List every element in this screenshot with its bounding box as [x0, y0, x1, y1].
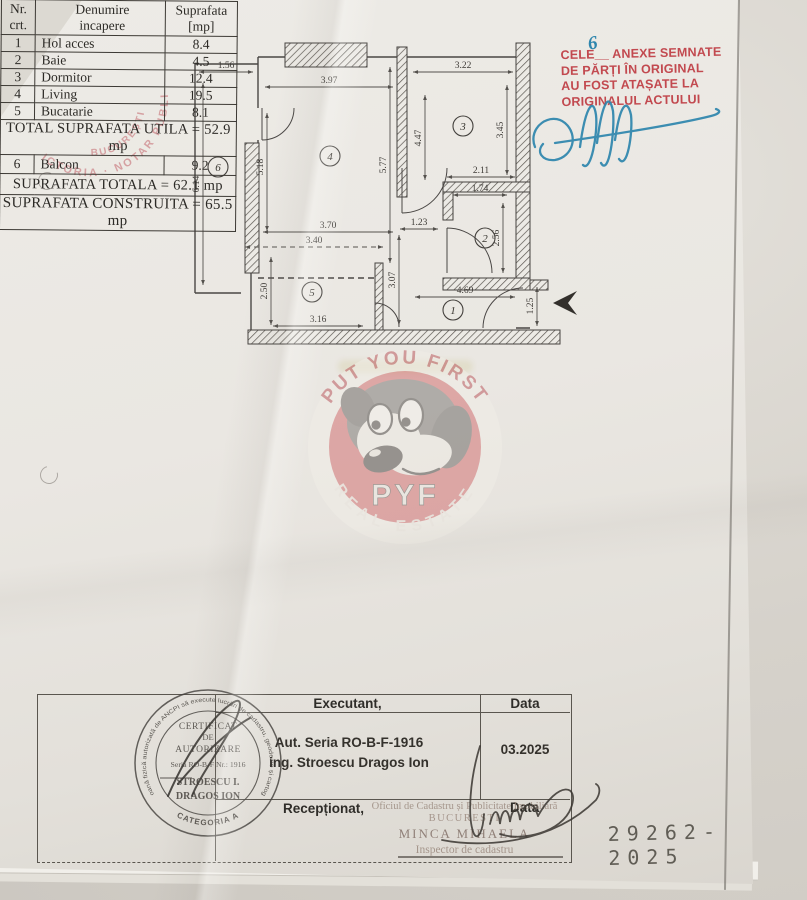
svg-text:3.22: 3.22	[455, 61, 472, 71]
svg-text:3.45: 3.45	[496, 121, 506, 138]
watermark-brand-text: PYF	[371, 479, 438, 512]
data-label-top: Data	[480, 696, 570, 711]
photographed-document: VICTORIA · NOTAR PUBLIC BUCUREȘTI	[0, 0, 807, 900]
svg-text:5.18: 5.18	[256, 158, 266, 175]
table-header-row: Nr.crt. Denumireincapere Suprafata[mp]	[1, 0, 237, 37]
svg-text:1: 1	[450, 305, 456, 317]
header-suprafata: Suprafata[mp]	[175, 3, 227, 34]
table-row: 2Baie4.5	[1, 51, 237, 70]
svg-text:3.40: 3.40	[306, 236, 323, 246]
total-construita-row: SUPRAFATA CONSTRUITA = 65.5 mp	[0, 194, 236, 231]
svg-text:2.11: 2.11	[473, 166, 490, 176]
svg-text:3.16: 3.16	[310, 315, 327, 325]
header-nr: Nr.crt.	[9, 2, 27, 33]
svg-text:3: 3	[459, 121, 466, 133]
table-row: 4Living19.5	[1, 85, 237, 104]
svg-text:1.74: 1.74	[472, 184, 489, 194]
svg-text:1.23: 1.23	[411, 218, 428, 228]
executant-pen-signature	[140, 688, 290, 818]
header-denumire: Denumireincapere	[75, 2, 129, 33]
reception-pen-signature	[420, 738, 605, 858]
svg-text:4: 4	[327, 151, 333, 163]
svg-text:4.47: 4.47	[414, 129, 424, 146]
svg-text:2: 2	[482, 233, 488, 245]
table-row: 3Dormitor12.4	[1, 68, 237, 87]
svg-text:3.07: 3.07	[388, 271, 398, 288]
blue-signature	[525, 85, 735, 185]
table-row: 1Hol acces8.4	[1, 34, 237, 53]
entrance-arrow-icon	[553, 291, 577, 315]
svg-text:3.70: 3.70	[320, 221, 337, 231]
room-area-table: Nr.crt. Denumireincapere Suprafata[mp] 1…	[0, 0, 238, 232]
svg-text:1.25: 1.25	[526, 297, 536, 314]
svg-text:3.97: 3.97	[321, 76, 338, 86]
balcon-row: 6Balcon9.2	[0, 154, 236, 175]
registration-number-stamp: 29262-2025	[607, 818, 768, 870]
table-row: 5Bucatarie8.1	[0, 102, 236, 121]
svg-text:5: 5	[309, 287, 315, 299]
svg-text:2.50: 2.50	[260, 282, 270, 299]
total-totala-row: SUPRAFATA TOTALA = 62.1 mp	[0, 173, 236, 196]
pyf-watermark-logo: PUT YOU FIRST REAL ESTATE PYF	[303, 345, 507, 549]
svg-text:4.69: 4.69	[457, 286, 474, 296]
total-utila-row: TOTAL SUPRAFATA UTILA = 52.9 mp	[0, 119, 236, 156]
floor-plan-drawing: 1.56 6.14 3.97 3.22 5.18 5.77 4.47 3.45 …	[185, 35, 585, 353]
door-arcs	[262, 108, 523, 328]
svg-text:5.77: 5.77	[379, 156, 389, 173]
